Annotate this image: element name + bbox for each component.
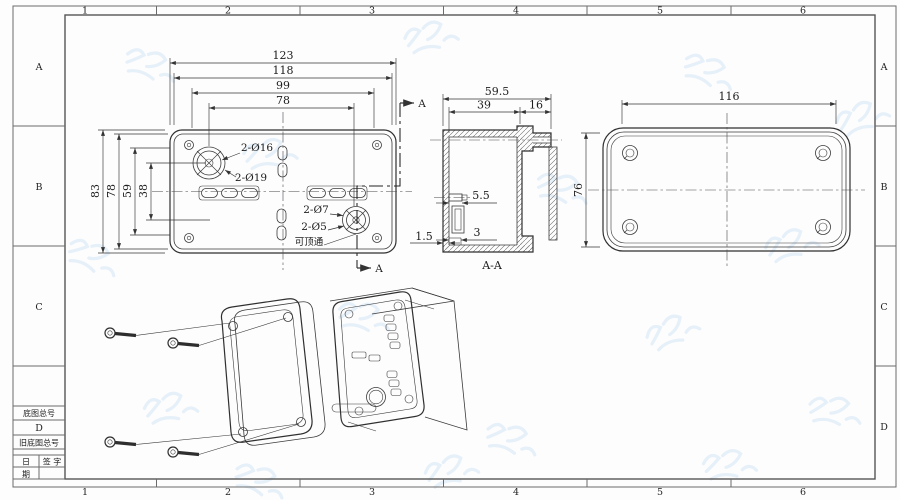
zone-number-bottom: 4 xyxy=(513,487,519,498)
callout-2xd7: 2-Ø7 xyxy=(303,204,329,216)
lid-screw xyxy=(816,220,831,235)
zone-letter-left: B xyxy=(36,182,43,193)
dim-59: 59 xyxy=(121,184,134,198)
zone-letter-right: A xyxy=(880,62,888,73)
old-base-drawing-no-label: 旧底图总号 xyxy=(19,438,59,448)
zone-letter-left: C xyxy=(35,302,42,313)
dim-5-5: 5.5 xyxy=(472,189,490,202)
zone-letter-right: C xyxy=(880,302,887,313)
zone-number-top: 2 xyxy=(225,6,231,17)
dim-118: 118 xyxy=(273,64,294,77)
zone-letter-right: B xyxy=(881,182,888,193)
base-drawing-no-label: 底图总号 xyxy=(23,408,55,418)
zone-number-top: 1 xyxy=(82,6,88,17)
dim-1-5: 1.5 xyxy=(415,230,433,243)
dim-83: 83 xyxy=(89,184,102,198)
zone-number-top: 3 xyxy=(369,6,375,17)
screw xyxy=(168,338,199,348)
vent-group-right xyxy=(307,186,367,200)
zone-letter-d: D xyxy=(35,423,43,434)
dim-16: 16 xyxy=(529,99,543,112)
dim-78-left: 78 xyxy=(105,184,118,198)
zone-number-bottom: 2 xyxy=(225,487,231,498)
zone-number-bottom: 6 xyxy=(800,487,806,498)
dim-99: 99 xyxy=(276,79,290,92)
zone-letter-right: D xyxy=(880,422,888,433)
back-view: 123 118 99 78 83 78 59 38 2-Ø16 2-Ø19 2-… xyxy=(89,49,426,275)
zone-number-bottom: 3 xyxy=(369,487,375,498)
vent-group-left xyxy=(199,186,259,200)
dim-116: 116 xyxy=(719,90,740,103)
date-label-top: 日 xyxy=(22,458,30,467)
callout-2xd5: 2-Ø5 xyxy=(301,221,327,233)
cable-slots-bottom xyxy=(277,209,286,240)
section-arrow-label-top: A xyxy=(417,98,426,110)
callout-2xd19: 2-Ø19 xyxy=(235,172,267,184)
drawing-canvas: 1 2 3 4 5 6 1 2 3 4 5 6 A B C A B C D 底图… xyxy=(0,0,900,500)
zone-number-top: 5 xyxy=(657,6,663,17)
signature-label: 签 字 xyxy=(43,457,62,467)
screw xyxy=(105,328,136,338)
dim-59-5: 59.5 xyxy=(485,85,510,98)
zone-number-bottom: 5 xyxy=(657,487,663,498)
lid-screw xyxy=(623,220,638,235)
title-block: 底图总号 D 旧底图总号 日 期 签 字 xyxy=(13,406,65,479)
callout-knockout-note: 可顶通 xyxy=(295,237,324,248)
box-body xyxy=(330,288,467,431)
zone-number-top: 6 xyxy=(800,6,806,17)
dim-3: 3 xyxy=(474,226,481,239)
screw xyxy=(105,437,136,447)
exploded-view xyxy=(105,288,467,457)
lid-screw xyxy=(623,146,638,161)
dim-123: 123 xyxy=(273,49,294,62)
section-title: A-A xyxy=(481,259,503,272)
dim-78-top: 78 xyxy=(276,94,290,107)
zone-letter-left: A xyxy=(35,62,43,73)
section-arrow-label-bottom: A xyxy=(374,263,383,275)
watermark-pattern xyxy=(65,18,891,500)
dim-38: 38 xyxy=(137,184,150,198)
callout-2xd16: 2-Ø16 xyxy=(241,142,274,154)
lid-screw xyxy=(816,146,831,161)
dim-39: 39 xyxy=(477,99,491,112)
drawing-sheet: 1 2 3 4 5 6 1 2 3 4 5 6 A B C A B C D 底图… xyxy=(0,0,900,500)
dim-76: 76 xyxy=(572,183,585,197)
screw xyxy=(168,447,199,457)
zone-number-top: 4 xyxy=(513,6,519,17)
date-label-bottom: 期 xyxy=(22,470,30,479)
cable-slots-top xyxy=(278,146,287,177)
zone-number-bottom: 1 xyxy=(82,487,88,498)
lid-view: 116 76 xyxy=(572,90,865,266)
knockout-small xyxy=(343,207,370,234)
